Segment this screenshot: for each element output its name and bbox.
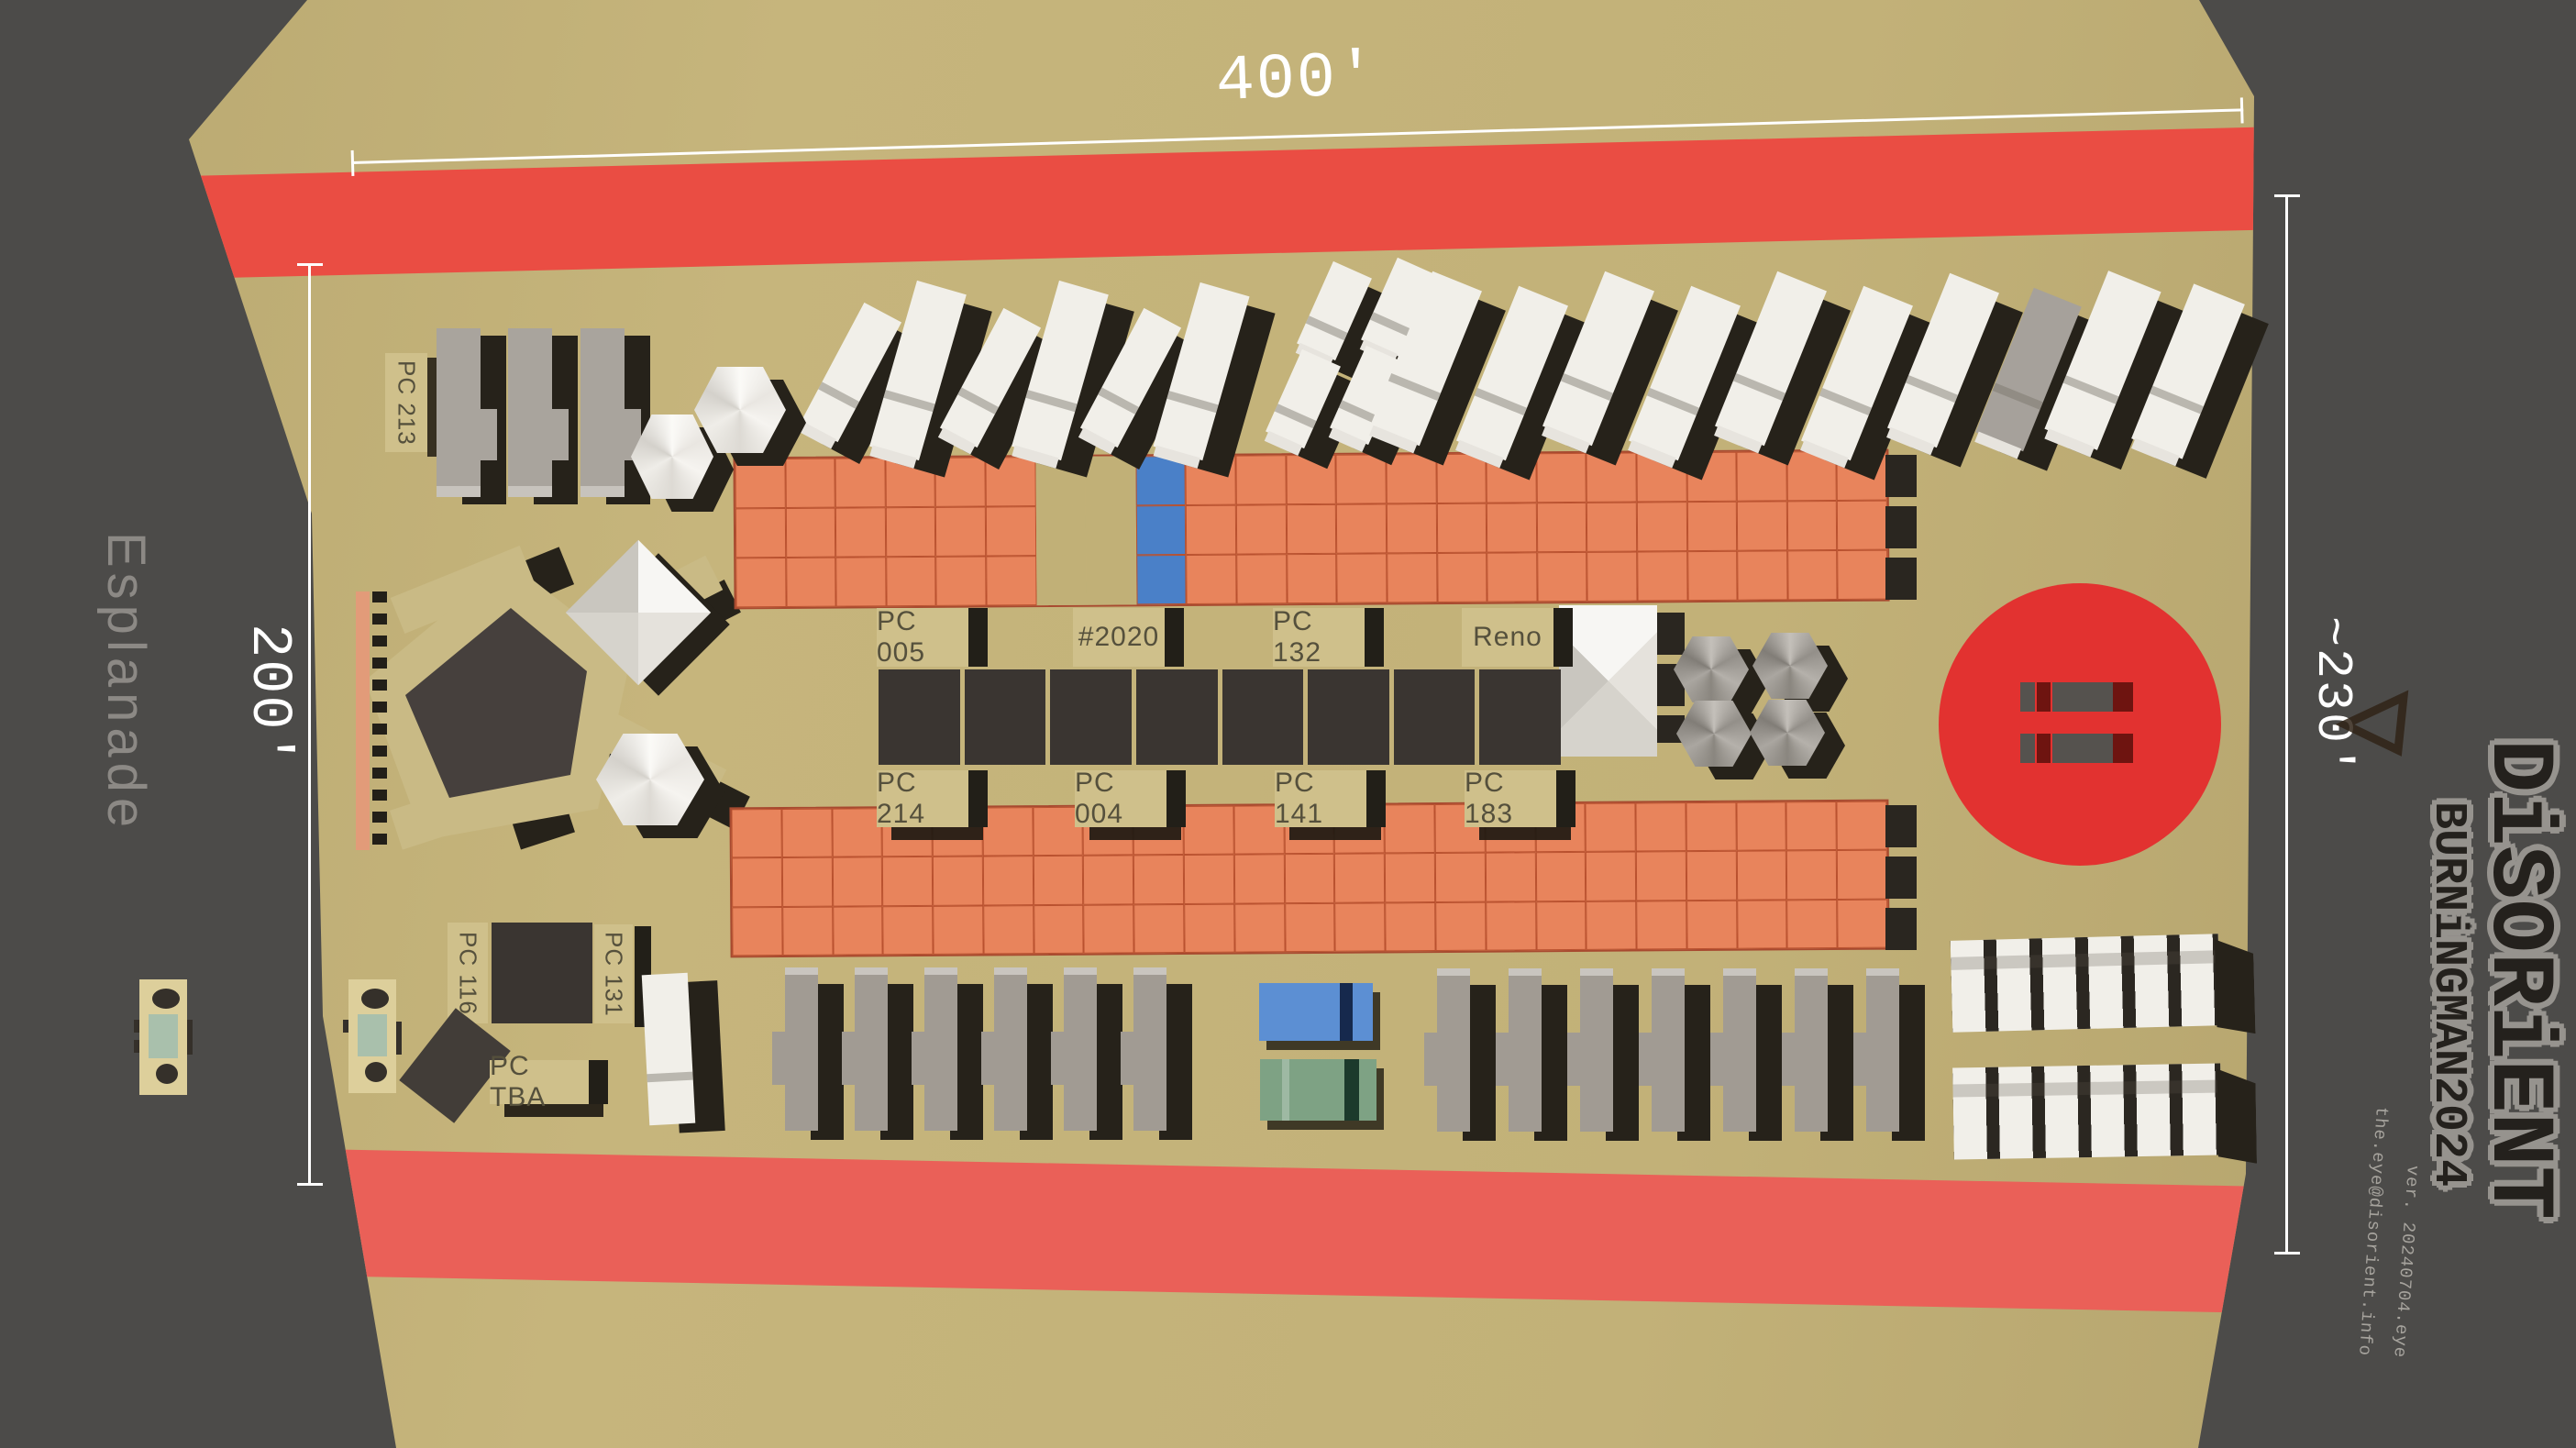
structure-cap — [508, 486, 552, 497]
shade-cell — [1787, 550, 1838, 600]
stage-platform — [2020, 734, 2035, 763]
camper-tick — [134, 1040, 139, 1053]
shade-cell — [1786, 850, 1837, 900]
placement-label-text: PC 141 — [1275, 768, 1366, 830]
shade-cell — [1236, 554, 1287, 603]
placement-label-text: PC 132 — [1273, 606, 1365, 669]
shade-cell — [1436, 503, 1487, 553]
rv-body — [1580, 976, 1613, 1132]
shade-cell — [1737, 501, 1787, 550]
rv-cap — [1866, 968, 1899, 976]
rv-gray — [1652, 976, 1685, 1132]
container-box-large — [492, 923, 592, 1023]
logo-disorient: DiSORiENT — [2476, 739, 2558, 1220]
shade-cell — [735, 508, 786, 558]
shade-grid-edge — [1885, 455, 1917, 602]
shade-cell — [1536, 901, 1587, 951]
stage-platform — [2113, 734, 2133, 763]
label-bar — [1165, 608, 1184, 667]
rv-slideout — [1496, 1033, 1509, 1086]
placement-label: PC 005 — [877, 608, 968, 667]
shade-cell — [1286, 504, 1336, 554]
shade-cell — [1486, 853, 1536, 902]
credit-version: ver. 20240704.eye — [2389, 1165, 2423, 1359]
shade-cell — [1234, 855, 1285, 904]
rv-band — [1098, 387, 1139, 415]
rv-gray — [1580, 976, 1613, 1132]
direction-arrow-icon — [2334, 686, 2416, 759]
camper-tick — [396, 1022, 402, 1055]
shade-cell — [933, 905, 983, 955]
shade-cell — [935, 506, 986, 556]
street-label-esplanade: Esplanade — [95, 532, 157, 833]
shade-cell — [1686, 900, 1737, 949]
rv-body — [1437, 976, 1470, 1132]
camper-detail — [361, 989, 389, 1009]
shade-cell — [1435, 901, 1486, 951]
shade-cell — [1687, 551, 1738, 601]
shade-cell — [1184, 903, 1234, 953]
placement-label-pctba: PC TBA — [490, 1051, 589, 1113]
placement-label-pc213: PC 213 — [392, 360, 421, 446]
dimension-line-right — [2285, 194, 2288, 1255]
rv-gray — [1723, 976, 1756, 1132]
rv-band — [1275, 403, 1317, 428]
shade-cell — [936, 556, 987, 605]
logo-burningman-year: BURNiNGMAN2024 — [2427, 801, 2469, 1187]
shade-cell — [1637, 502, 1687, 551]
rv-gray — [855, 975, 888, 1131]
shade-cell — [1487, 552, 1537, 602]
shade-cell — [1686, 851, 1737, 901]
rv-band — [2150, 386, 2204, 415]
placement-label-text: #2020 — [1078, 622, 1159, 653]
shade-cell — [983, 905, 1034, 955]
label-bar — [1553, 608, 1573, 667]
shade-cell — [1336, 553, 1387, 602]
rv-band — [1906, 375, 1958, 403]
hex-tent-gray — [1676, 701, 1752, 767]
container-box — [1394, 669, 1476, 765]
rv-body — [1509, 976, 1542, 1132]
shade-cell — [1236, 504, 1287, 554]
shade-cell — [1587, 503, 1637, 552]
rv-band — [1819, 388, 1872, 415]
camper-detail — [365, 1062, 387, 1082]
structure-body — [580, 328, 625, 497]
frontage-strip — [356, 591, 370, 850]
shade-cell — [1837, 801, 1887, 851]
hex-tent-gray — [1750, 700, 1825, 766]
shade-cell — [1837, 850, 1887, 900]
shade-cell — [1084, 904, 1134, 954]
shade-cell — [933, 857, 983, 906]
blue-bus — [1259, 983, 1373, 1041]
stage-platform — [2037, 734, 2051, 763]
structure-cap — [580, 486, 625, 497]
placement-label: PC 004 — [1075, 770, 1166, 827]
rv-slideout — [1121, 1032, 1133, 1085]
rv-row-bottom-right-2 — [1952, 1063, 2222, 1159]
shade-cell — [832, 808, 882, 857]
hex-tent-gray — [1674, 636, 1749, 702]
shade-cell — [882, 857, 933, 906]
container-box — [879, 669, 960, 765]
shade-cell — [1686, 502, 1737, 551]
rv-cap — [785, 967, 818, 975]
camper-detail — [152, 989, 180, 1009]
rv-gray — [1133, 975, 1166, 1131]
rv-band — [1025, 390, 1077, 412]
shade-cell — [982, 807, 1033, 857]
camper-tick — [343, 1020, 348, 1033]
rv-slideout — [1639, 1033, 1652, 1086]
hex-tent — [694, 367, 786, 453]
pyramid-tent — [1559, 605, 1657, 757]
rv-band — [1561, 373, 1613, 401]
container-row — [879, 669, 1561, 765]
shade-cell — [785, 459, 835, 508]
rv-slideout — [981, 1032, 994, 1085]
rv-band — [1647, 388, 1699, 415]
rv-slideout — [1710, 1033, 1723, 1086]
shade-cell — [1133, 904, 1184, 954]
shade-cell — [886, 557, 936, 606]
placement-label-pc116: PC 116 — [454, 932, 482, 1015]
shade-cell — [735, 459, 785, 508]
shade-cell — [1838, 550, 1888, 600]
frontage-strip-dashes — [372, 591, 387, 850]
shade-cell — [1437, 553, 1487, 602]
shade-cell — [1837, 501, 1887, 550]
placement-label: #2020 — [1073, 608, 1165, 667]
shade-cell — [1334, 854, 1385, 903]
label-bar — [968, 770, 988, 827]
shade-cell — [1435, 853, 1486, 902]
shade-cell — [1736, 851, 1786, 901]
shade-cell — [1236, 455, 1287, 504]
rv-body — [1133, 975, 1166, 1131]
shade-cell — [832, 857, 882, 907]
mini-camper-left — [139, 979, 187, 1095]
rv-gray — [1064, 975, 1097, 1131]
placement-label-text: PC 183 — [1465, 768, 1556, 830]
notched-structure — [508, 328, 552, 497]
shade-cell — [835, 458, 886, 507]
container-box — [1222, 669, 1304, 765]
placement-label-text: PC 005 — [877, 606, 968, 669]
rv-band — [883, 390, 934, 412]
placement-label: PC 141 — [1275, 770, 1366, 827]
placement-label: PC 183 — [1465, 770, 1556, 827]
camper-windshield — [358, 1014, 387, 1056]
stage-platform — [2052, 734, 2113, 763]
shade-cell — [833, 906, 883, 956]
notched-structure — [580, 328, 625, 497]
rv-body — [1723, 976, 1756, 1132]
hex-tent-gray — [1752, 633, 1828, 699]
shade-cell — [1285, 902, 1335, 952]
shade-cell — [1386, 454, 1436, 503]
structure-body — [437, 328, 481, 497]
shade-cell — [1636, 802, 1686, 852]
shade-cell — [1083, 856, 1133, 905]
shade-cell — [732, 907, 782, 956]
shade-cell — [1034, 856, 1084, 905]
shade-cell — [1036, 556, 1087, 605]
shade-cell — [983, 856, 1034, 905]
rv-gray — [1866, 976, 1899, 1132]
rv-row-stripes — [1951, 934, 2221, 1033]
shade-cell — [1336, 454, 1387, 503]
shade-cell — [1086, 505, 1136, 555]
rv-band — [1306, 315, 1348, 340]
camp-map: PC 213 PC 116 PC 131 PC TBA — [0, 0, 2576, 1448]
placement-label: Reno — [1462, 608, 1553, 667]
label-bar — [1556, 770, 1575, 827]
rv-slideout — [1782, 1033, 1795, 1086]
shade-cell — [1186, 505, 1236, 555]
shade-cell — [1636, 901, 1686, 950]
camper-windshield — [149, 1014, 178, 1058]
structure-step — [481, 409, 497, 460]
rv-cap — [994, 967, 1027, 975]
container-box — [965, 669, 1046, 765]
rv-cap — [924, 967, 957, 975]
rv-band — [1475, 388, 1527, 415]
shade-cell — [1385, 804, 1435, 854]
dimension-label-left: 200' — [237, 624, 302, 768]
placement-label-text: Reno — [1473, 622, 1542, 653]
green-bus — [1260, 1059, 1376, 1121]
shade-cell — [1686, 802, 1736, 852]
rv-body — [1866, 976, 1899, 1132]
shade-cell — [1636, 851, 1686, 901]
rv-row-stripes — [1952, 1063, 2222, 1159]
red-circle-stage — [1939, 583, 2221, 866]
road-stripe-top — [183, 127, 2258, 279]
shade-cell — [986, 506, 1036, 556]
rv-body — [1652, 976, 1685, 1132]
rv-slideout — [1853, 1033, 1866, 1086]
shade-cell — [782, 906, 833, 956]
shade-cell — [1336, 503, 1387, 553]
shade-grid-top — [733, 449, 1889, 610]
shade-cell — [1284, 854, 1334, 903]
notched-structure — [437, 328, 481, 497]
shade-cell — [1387, 553, 1437, 602]
shade-cell — [1536, 453, 1587, 503]
container-box — [1050, 669, 1132, 765]
stage-platform — [2113, 682, 2133, 712]
shade-cell — [1035, 506, 1086, 556]
rv-gray — [1509, 976, 1542, 1132]
camper-detail — [156, 1064, 178, 1084]
camper-tick — [187, 1020, 193, 1055]
rv-slideout — [842, 1032, 855, 1085]
placement-label-text: PC 004 — [1075, 768, 1166, 830]
rv-band — [818, 381, 859, 409]
shade-cell — [986, 556, 1036, 605]
shade-cell — [1133, 855, 1184, 904]
stage-platform — [2020, 682, 2035, 712]
dimension-label-top: 400' — [1215, 41, 1379, 119]
shade-cell — [1737, 550, 1787, 600]
shade-cell — [735, 558, 786, 607]
shade-cell — [781, 809, 832, 858]
placement-label-pc131: PC 131 — [600, 932, 628, 1017]
rv-cap — [1652, 968, 1685, 976]
shade-cell — [1183, 806, 1233, 856]
label-bar — [1366, 770, 1386, 827]
shade-cell — [1335, 902, 1386, 952]
container-box — [1479, 669, 1561, 765]
rv-slideout — [1424, 1033, 1437, 1086]
bus-stripe — [1344, 1059, 1359, 1121]
shade-cell — [1737, 900, 1787, 949]
rv-cap — [1509, 968, 1542, 976]
label-bar — [589, 1060, 608, 1104]
rv-band — [1166, 391, 1218, 413]
rv-slideout — [772, 1032, 785, 1085]
shade-cell — [1086, 555, 1136, 604]
shade-cell — [1136, 555, 1187, 604]
rv-body — [785, 975, 818, 1131]
shade-cell — [1537, 503, 1587, 552]
rv-body — [855, 975, 888, 1131]
stage-platform — [2037, 682, 2051, 712]
rv-row-bottom-right-1 — [1951, 934, 2221, 1033]
shade-cell — [782, 857, 833, 907]
shade-cell — [1385, 853, 1435, 902]
rv-gray — [1795, 976, 1828, 1132]
placement-label: PC 132 — [1273, 608, 1365, 667]
shade-cell — [1637, 551, 1687, 601]
rv-band — [1733, 373, 1786, 401]
rv-gray — [785, 975, 818, 1131]
camper-tick — [134, 1020, 139, 1033]
road-stripe-bottom — [309, 1149, 2255, 1313]
shade-cell — [1234, 903, 1285, 953]
shade-cell — [835, 557, 886, 606]
shade-cell — [1586, 901, 1636, 950]
hex-tent — [596, 734, 704, 825]
shade-cell — [785, 508, 835, 558]
shade-cell — [1187, 555, 1237, 604]
shade-cell — [1586, 852, 1636, 901]
shade-cell — [886, 507, 936, 557]
shade-cell — [1385, 902, 1435, 952]
rv-band — [1388, 373, 1441, 401]
shade-cell — [1184, 855, 1234, 904]
rv-band — [1370, 312, 1412, 337]
shade-cell — [1287, 554, 1337, 603]
shade-cell — [732, 857, 782, 907]
rv-body — [924, 975, 957, 1131]
shade-cell — [786, 558, 836, 607]
credit-email: the.eye@disorient.info — [2354, 1106, 2392, 1357]
shade-cell — [883, 906, 934, 956]
shade-cell — [1034, 904, 1084, 954]
shade-cell — [1786, 801, 1837, 851]
bus-stripe-light — [1282, 1059, 1289, 1121]
bus-stripe — [1340, 983, 1353, 1041]
label-bar — [1166, 770, 1186, 827]
rv-body — [994, 975, 1027, 1131]
mini-camper-inner — [348, 979, 396, 1093]
shade-grid-edge — [1885, 805, 1917, 952]
rv-band — [2063, 375, 2119, 404]
structure-body — [508, 328, 552, 497]
shade-cell — [1787, 501, 1838, 550]
rv-slideout — [1051, 1032, 1064, 1085]
shade-cell — [1136, 505, 1187, 555]
label-bar — [1365, 608, 1384, 667]
shade-cell — [1486, 901, 1536, 951]
rv-gray — [924, 975, 957, 1131]
rv-cap — [1133, 967, 1166, 975]
shade-cell — [731, 809, 781, 858]
structure-step — [552, 409, 569, 460]
shade-cell — [835, 507, 886, 557]
label-bar — [968, 608, 988, 667]
rv-gray — [1437, 976, 1470, 1132]
rv-cap — [1580, 968, 1613, 976]
rv-body — [1795, 976, 1828, 1132]
rv-cap — [1437, 968, 1470, 976]
shade-cell — [1736, 801, 1786, 851]
rv-cap — [1064, 967, 1097, 975]
stage-platform — [2052, 682, 2113, 712]
shade-cell — [1587, 552, 1638, 602]
rv-cap — [1795, 968, 1828, 976]
shade-cell — [1535, 852, 1586, 901]
rv-band — [957, 387, 999, 415]
rv-body — [642, 973, 696, 1125]
container-box — [1136, 669, 1218, 765]
shade-cell — [1787, 900, 1838, 949]
placement-label: PC 214 — [877, 770, 968, 827]
rv-white-single — [642, 973, 696, 1125]
shade-cell — [1387, 503, 1437, 553]
shade-cell — [1487, 503, 1537, 552]
rv-body — [1064, 975, 1097, 1131]
placement-label-text: PC 214 — [877, 768, 968, 830]
rv-slideout — [1567, 1033, 1580, 1086]
rv-cap — [1723, 968, 1756, 976]
shade-cell — [1537, 552, 1587, 602]
shade-cell — [1837, 899, 1887, 948]
rv-slideout — [912, 1032, 924, 1085]
shade-cell — [1586, 803, 1636, 853]
rv-gray — [994, 975, 1027, 1131]
structure-cap — [437, 486, 481, 497]
container-box — [1308, 669, 1389, 765]
rv-cap — [855, 967, 888, 975]
rv-band — [1992, 383, 2042, 410]
dimension-line-left — [308, 263, 311, 1186]
